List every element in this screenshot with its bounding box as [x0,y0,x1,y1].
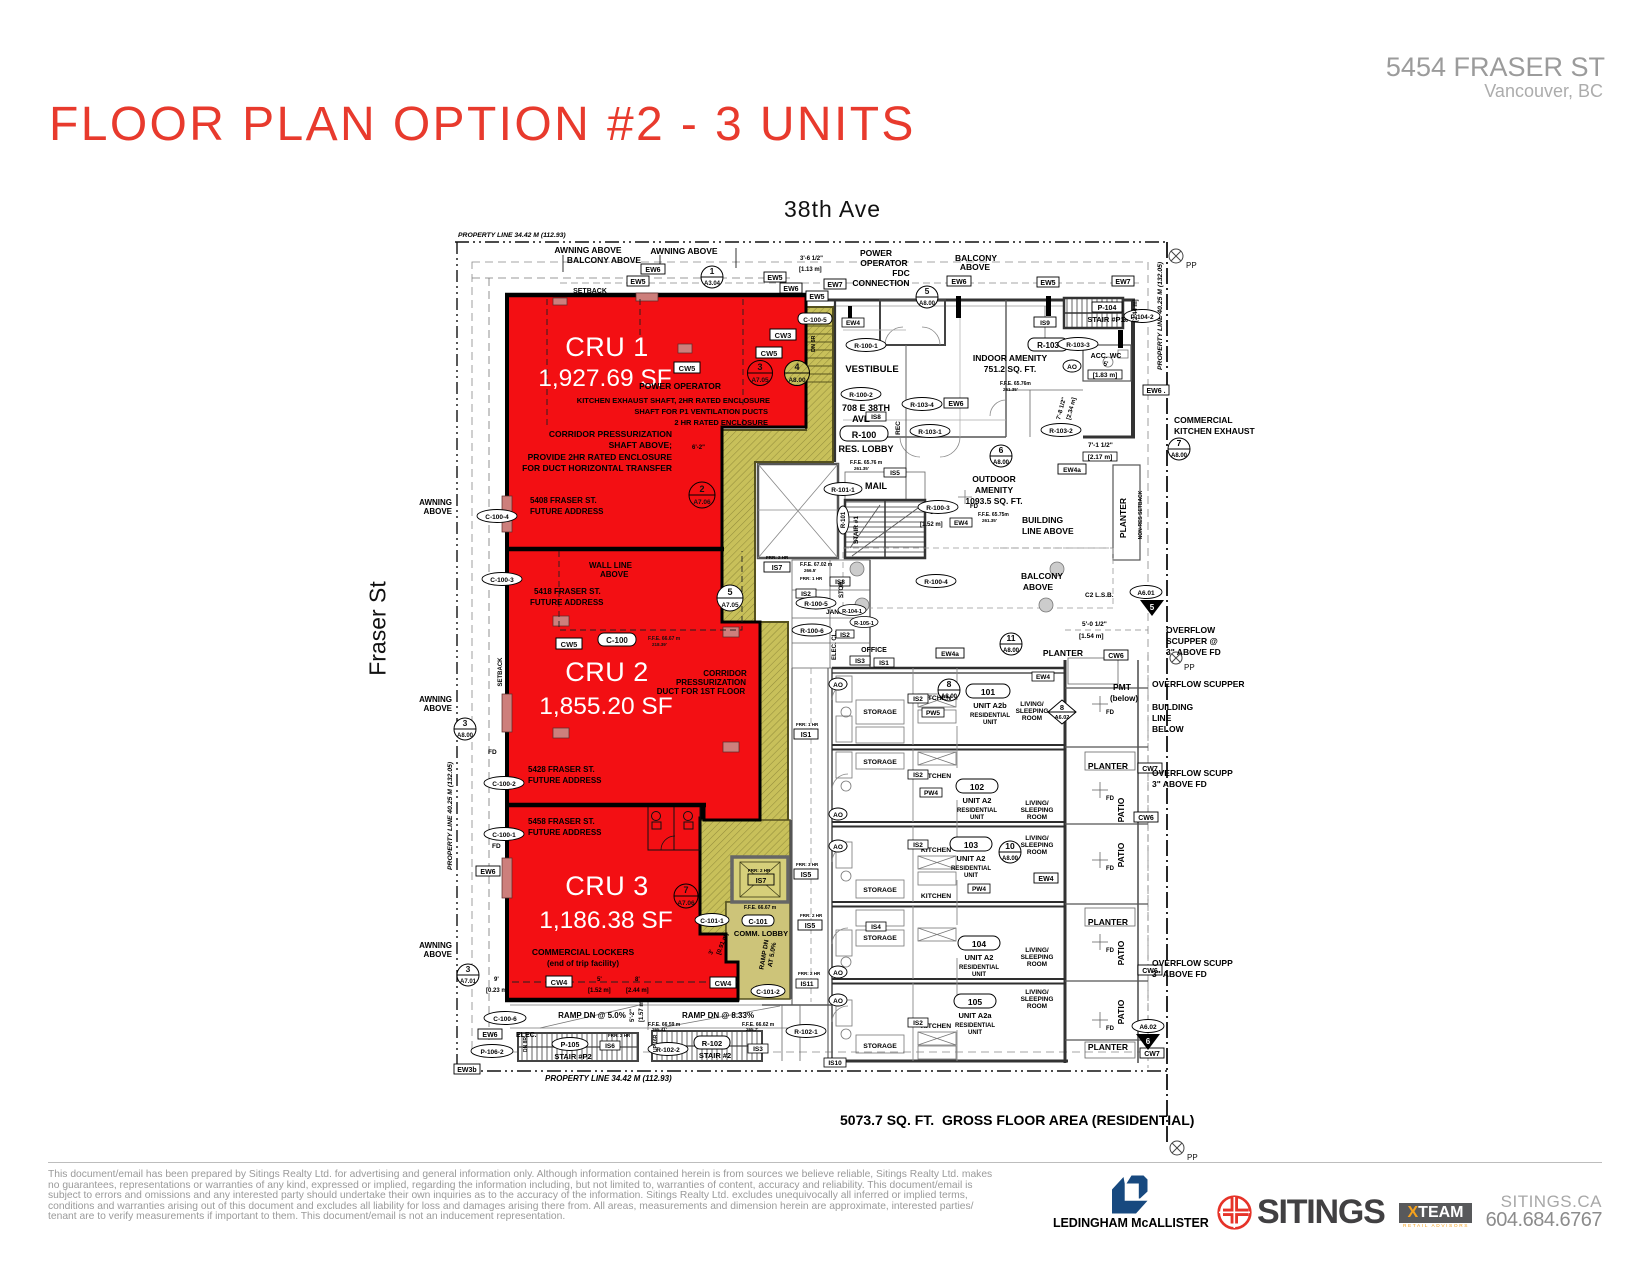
svg-text:A7.06: A7.06 [677,900,695,907]
svg-text:R-102-2: R-102-2 [656,1047,680,1054]
svg-text:UNIT A2: UNIT A2 [965,953,994,962]
svg-text:C-101-2: C-101-2 [756,989,780,996]
svg-text:C-101-1: C-101-1 [700,918,724,925]
svg-text:265.7': 265.7' [746,1027,758,1032]
svg-text:C-100-5: C-100-5 [803,317,827,324]
svg-text:IS5: IS5 [805,923,816,930]
svg-text:SLEEPING: SLEEPING [1016,708,1049,715]
svg-text:ROOM: ROOM [1027,814,1047,821]
svg-text:IS2: IS2 [913,842,923,849]
svg-text:FUTURE ADDRESS: FUTURE ADDRESS [528,828,602,837]
svg-text:3'-6 1/2": 3'-6 1/2" [800,256,823,262]
svg-text:3" ABOVE FD: 3" ABOVE FD [1152,969,1207,979]
svg-text:FDC: FDC [892,268,909,278]
svg-text:9': 9' [494,977,499,983]
svg-text:AO: AO [833,970,843,977]
svg-text:ROOM: ROOM [1027,961,1047,968]
svg-text:IS1: IS1 [879,660,889,667]
svg-text:AO: AO [833,844,843,851]
svg-text:AWNING: AWNING [419,695,452,704]
svg-text:R-103-3: R-103-3 [1066,342,1090,349]
svg-text:IS3: IS3 [855,658,865,665]
svg-text:EW6: EW6 [480,869,495,876]
svg-text:OUTDOOR: OUTDOOR [972,474,1015,484]
svg-text:5408 FRASER ST.: 5408 FRASER ST. [530,496,597,505]
svg-text:FRR: 2 HR: FRR: 2 HR [800,913,823,918]
svg-text:STORAGE: STORAGE [863,709,897,716]
svg-text:FOR DUCT HORIZONTAL TRANSFER: FOR DUCT HORIZONTAL TRANSFER [522,463,672,473]
svg-text:PRESSURIZATION: PRESSURIZATION [676,678,746,687]
svg-text:FD: FD [1106,796,1115,802]
svg-text:ABOVE: ABOVE [424,507,453,516]
svg-text:IS4: IS4 [871,924,881,931]
svg-text:PROPERTY LINE 40.25 M (132.05): PROPERTY LINE 40.25 M (132.05) [447,761,454,870]
svg-text:[1.83 m]: [1.83 m] [1093,372,1118,379]
svg-text:R-103-2: R-103-2 [1049,428,1073,435]
svg-text:R-104-1: R-104-1 [842,609,862,615]
svg-text:IS10: IS10 [828,1060,842,1067]
svg-text:EW5: EW5 [1040,280,1055,287]
svg-text:5': 5' [597,977,602,983]
svg-text:3: 3 [757,362,762,372]
svg-text:6: 6 [1146,1037,1151,1046]
svg-text:OPERATOR: OPERATOR [860,258,907,268]
svg-text:RAMP DN @ 5.0%: RAMP DN @ 5.0% [558,1011,626,1020]
svg-text:STAIR #1: STAIR #1 [853,516,860,544]
svg-text:IS5: IS5 [890,470,900,477]
svg-text:[0.23 m]: [0.23 m] [486,988,509,994]
svg-text:OVERFLOW SCUPPER: OVERFLOW SCUPPER [1152,679,1245,689]
svg-text:AO: AO [1067,364,1077,371]
svg-text:FRR: 3 HR: FRR: 3 HR [796,862,819,867]
svg-text:UNIT: UNIT [968,1030,982,1036]
svg-text:CONNECTION: CONNECTION [852,278,909,288]
svg-text:[1.52 m]: [1.52 m] [920,522,943,528]
svg-text:PLANTER: PLANTER [1088,1042,1128,1052]
svg-text:A7.05: A7.05 [721,602,739,609]
svg-text:RAMP DN @ 8.33%: RAMP DN @ 8.33% [682,1011,754,1020]
svg-text:CW5: CW5 [679,364,696,373]
svg-text:RESIDENTIAL: RESIDENTIAL [951,866,991,872]
svg-text:[2.34 m]: [2.34 m] [1066,397,1078,420]
svg-text:PROPERTY LINE 34.42 M (112.93): PROPERTY LINE 34.42 M (112.93) [458,232,566,239]
svg-text:[1.52 m]: [1.52 m] [588,988,611,994]
svg-text:5: 5 [727,587,732,597]
svg-text:IS11: IS11 [800,981,813,988]
svg-text:STAIR #P1: STAIR #P1 [1087,315,1124,324]
svg-text:EW7: EW7 [827,282,842,289]
svg-text:[1.54 m]: [1.54 m] [1079,633,1104,640]
svg-text:SLEEPING: SLEEPING [1021,842,1054,849]
svg-text:OVERFLOW: OVERFLOW [1166,625,1216,635]
svg-text:R-100-4: R-100-4 [924,579,948,586]
svg-text:3: 3 [466,964,471,974]
svg-text:1,186.38 SF: 1,186.38 SF [539,907,672,934]
svg-text:SLEEPING: SLEEPING [1021,996,1054,1003]
svg-text:STORAGE: STORAGE [863,935,897,942]
svg-text:EW4a: EW4a [1063,467,1081,474]
svg-text:UNIT: UNIT [964,873,978,879]
svg-text:FD: FD [970,504,979,510]
svg-text:R-100: R-100 [852,430,877,440]
svg-text:FD: FD [488,749,497,756]
svg-text:R-103-4: R-103-4 [910,402,934,409]
svg-text:STOR.: STOR. [839,579,845,598]
svg-text:1,855.20 SF: 1,855.20 SF [539,693,672,720]
svg-text:CW6: CW6 [1138,815,1154,822]
svg-text:265.41': 265.41' [652,1027,667,1032]
svg-text:ABOVE: ABOVE [424,704,453,713]
svg-text:CRU 2: CRU 2 [565,657,649,687]
svg-text:EW3b: EW3b [457,1067,476,1074]
svg-text:AO: AO [833,682,843,689]
svg-text:R-103-1: R-103-1 [918,429,942,436]
svg-text:PP: PP [1187,1153,1198,1162]
svg-text:CW5: CW5 [561,640,578,649]
svg-text:A8.00: A8.00 [1003,648,1020,654]
svg-text:BUILDING: BUILDING [1152,702,1193,712]
svg-text:PW5: PW5 [926,710,940,717]
svg-text:C-100-6: C-100-6 [493,1016,517,1023]
svg-text:103: 103 [964,840,978,850]
svg-text:5458 FRASER ST.: 5458 FRASER ST. [528,817,595,826]
svg-text:CW5: CW5 [761,349,778,358]
svg-text:FUTURE ADDRESS: FUTURE ADDRESS [530,507,604,516]
svg-text:P-106-2: P-106-2 [480,1049,504,1056]
svg-text:104: 104 [972,939,986,949]
svg-text:UNIT A2: UNIT A2 [957,854,986,863]
svg-text:5: 5 [925,286,930,296]
svg-text:STORAGE: STORAGE [863,887,897,894]
svg-text:CW6: CW6 [1108,653,1124,660]
svg-text:5428 FRASER ST.: 5428 FRASER ST. [528,765,595,774]
svg-text:SHAFT ABOVE;: SHAFT ABOVE; [609,440,673,450]
svg-text:LIVING/: LIVING/ [1020,701,1044,708]
svg-text:8': 8' [635,977,640,983]
svg-text:SLEEPING: SLEEPING [1021,954,1054,961]
svg-text:C-100-2: C-100-2 [492,781,516,788]
svg-text:5'-2": 5'-2" [630,1009,636,1022]
svg-text:C-100-3: C-100-3 [490,577,514,584]
svg-text:R-100-1: R-100-1 [854,343,878,350]
svg-text:P-105: P-105 [561,1042,580,1049]
svg-text:A8.00: A8.00 [1171,453,1188,459]
svg-text:COMMERCIAL: COMMERCIAL [1174,415,1233,425]
svg-text:2 HR RATED ENCLOSURE: 2 HR RATED ENCLOSURE [674,418,768,427]
svg-text:3" ABOVE FD: 3" ABOVE FD [1152,779,1207,789]
svg-text:A8.00: A8.00 [1002,856,1019,862]
svg-text:EW4a: EW4a [941,651,959,658]
svg-text:A6.02: A6.02 [1055,715,1070,721]
svg-text:708 E 38TH: 708 E 38TH [842,403,890,413]
svg-text:6: 6 [999,445,1004,455]
svg-text:7'-1 1/2": 7'-1 1/2" [1088,442,1113,449]
svg-text:ELEC.: ELEC. [516,1032,537,1039]
svg-text:POWER: POWER [860,248,892,258]
svg-text:5: 5 [1150,603,1155,612]
svg-text:POWER OPERATOR: POWER OPERATOR [639,381,721,391]
svg-text:RES. LOBBY: RES. LOBBY [838,444,893,454]
svg-text:C-100: C-100 [606,636,628,645]
svg-text:R-102: R-102 [702,1039,722,1048]
svg-text:105: 105 [968,997,982,1007]
svg-text:C-101: C-101 [748,919,767,926]
svg-text:IS1: IS1 [801,732,812,739]
svg-text:A7.05: A7.05 [751,377,769,384]
svg-text:IS2: IS2 [913,696,923,703]
svg-text:SCUPPER @: SCUPPER @ [1166,636,1218,646]
svg-text:CW4: CW4 [551,978,568,987]
svg-text:UNIT A2a: UNIT A2a [958,1011,992,1020]
svg-text:3" ABOVE FD: 3" ABOVE FD [1166,647,1221,657]
svg-text:ROOM: ROOM [1027,1003,1047,1010]
svg-text:IS7: IS7 [772,565,783,572]
svg-text:PLANTER: PLANTER [1043,648,1083,658]
svg-text:PLANTER: PLANTER [1118,498,1128,538]
svg-text:4: 4 [794,362,799,372]
svg-text:261.35': 261.35' [854,466,869,471]
svg-text:5418 FRASER ST.: 5418 FRASER ST. [534,587,601,596]
svg-text:7: 7 [1177,438,1182,448]
svg-text:EW4: EW4 [1036,674,1050,681]
svg-text:[1.57 m]: [1.57 m] [639,999,645,1022]
svg-text:LINE: LINE [1152,713,1172,723]
svg-text:EW6: EW6 [783,286,798,293]
svg-text:UNIT: UNIT [983,720,997,726]
svg-text:IS2: IS2 [840,632,850,639]
svg-text:REC: REC [895,421,902,435]
svg-text:R-100-2: R-100-2 [849,392,873,399]
svg-text:1: 1 [710,266,715,276]
svg-text:IS3: IS3 [753,1046,763,1053]
svg-text:PATIO: PATIO [1116,999,1126,1024]
svg-text:AO: AO [833,998,843,1005]
svg-text:VESTIBULE: VESTIBULE [845,364,898,375]
svg-text:101: 101 [981,687,995,697]
svg-text:IS9: IS9 [1040,320,1050,327]
svg-text:FRR: 2 HR: FRR: 2 HR [766,555,789,560]
svg-text:A6.02: A6.02 [1139,1024,1157,1031]
svg-text:EW6: EW6 [645,267,660,274]
svg-text:KITCHEN EXHAUST SHAFT, 2HR RAT: KITCHEN EXHAUST SHAFT, 2HR RATED ENCLOSU… [577,396,770,405]
svg-text:FUTURE ADDRESS: FUTURE ADDRESS [530,598,604,607]
svg-text:LIVING/: LIVING/ [1025,989,1049,996]
svg-text:RESIDENTIAL: RESIDENTIAL [970,713,1010,719]
svg-text:STORAGE: STORAGE [863,759,897,766]
svg-text:R-103: R-103 [1037,341,1059,350]
svg-text:RESIDENTIAL: RESIDENTIAL [959,965,999,971]
svg-text:261.35': 261.35' [982,518,997,523]
svg-text:CORRIDOR: CORRIDOR [703,669,747,678]
svg-text:IS2: IS2 [913,772,923,779]
svg-text:KITCHEN EXHAUST: KITCHEN EXHAUST [1174,426,1256,436]
svg-text:266.5': 266.5' [804,568,816,573]
svg-text:BUILDING: BUILDING [1022,515,1063,525]
svg-text:FRR: 2 HR: FRR: 2 HR [748,868,771,873]
svg-text:AWNING: AWNING [419,941,452,950]
svg-text:102: 102 [970,782,984,792]
svg-text:11: 11 [1007,633,1016,643]
svg-text:(end of trip facility): (end of trip facility) [547,959,619,968]
svg-text:UNIT: UNIT [972,972,986,978]
svg-text:UNIT: UNIT [970,815,984,821]
svg-text:SETBACK: SETBACK [498,657,504,687]
svg-text:6'-2": 6'-2" [692,445,705,451]
svg-text:IS2: IS2 [913,1020,923,1027]
svg-text:IS5: IS5 [801,872,812,879]
svg-text:R-100-3: R-100-3 [926,505,950,512]
svg-text:PLANTER: PLANTER [1088,917,1128,927]
svg-text:OFFICE: OFFICE [861,647,887,654]
svg-text:LIVING/: LIVING/ [1025,947,1049,954]
svg-text:FRR: 1 HR: FRR: 1 HR [800,576,823,581]
svg-text:PP: PP [1186,261,1197,270]
svg-text:EW6: EW6 [948,401,963,408]
svg-text:CRU 3: CRU 3 [565,871,649,901]
svg-text:3: 3 [463,718,468,728]
svg-text:IS8: IS8 [871,414,881,421]
svg-text:FD: FD [1106,866,1115,872]
svg-text:[2.44 m]: [2.44 m] [626,988,649,994]
svg-text:FRR: 2 HR: FRR: 2 HR [608,1033,631,1038]
svg-text:DUCT FOR 1ST FLOOR: DUCT FOR 1ST FLOOR [657,687,746,696]
svg-text:EW6: EW6 [951,279,966,286]
svg-text:SETBACK: SETBACK [573,288,607,295]
svg-text:8': 8' [1124,317,1130,322]
svg-text:EW4: EW4 [846,320,860,327]
svg-text:AO: AO [833,812,843,819]
svg-text:CW7: CW7 [1144,1051,1160,1058]
svg-text:EW5: EW5 [767,275,782,282]
svg-text:MAIL: MAIL [865,481,887,491]
svg-text:PW4: PW4 [924,790,938,797]
svg-text:STORAGE: STORAGE [863,1043,897,1050]
svg-text:A8.00: A8.00 [788,377,806,384]
svg-text:ACC. WC: ACC. WC [1091,353,1122,360]
svg-text:FD: FD [1106,710,1115,716]
svg-text:[2.44 m]: [2.44 m] [1133,299,1139,322]
svg-text:PLANTER: PLANTER [1088,761,1128,771]
svg-text:INDOOR AMENITY: INDOOR AMENITY [973,353,1048,363]
svg-text:A3.04: A3.04 [704,281,721,287]
svg-text:OVERFLOW SCUPP: OVERFLOW SCUPP [1152,958,1233,968]
svg-text:[2.17 m]: [2.17 m] [1088,454,1113,461]
svg-text:751.2 SQ. FT.: 751.2 SQ. FT. [984,364,1036,374]
svg-text:EW6 .: EW6 . [1146,388,1165,395]
svg-text:ROOM: ROOM [1027,849,1047,856]
svg-text:R-100-5: R-100-5 [804,601,828,608]
svg-text:R-101-1: R-101-1 [831,487,855,494]
svg-text:EW4: EW4 [954,520,968,527]
svg-text:261.35': 261.35' [1003,387,1018,392]
svg-text:8: 8 [947,679,952,689]
svg-text:R-102-1: R-102-1 [794,1029,818,1036]
svg-text:PP: PP [1184,663,1195,672]
svg-text:[1.13 m]: [1.13 m] [799,267,822,273]
svg-text:IS7: IS7 [756,878,767,885]
svg-text:C-100-4: C-100-4 [485,514,509,521]
svg-text:ABOVE: ABOVE [1023,582,1054,592]
svg-text:CRU 1: CRU 1 [565,332,649,362]
svg-text:FD: FD [1106,1026,1115,1032]
svg-text:AWNING ABOVE: AWNING ABOVE [650,246,718,256]
svg-text:C-100-1: C-100-1 [492,832,516,839]
svg-text:PROPERTY LINE 34.42 M (112.93): PROPERTY LINE 34.42 M (112.93) [545,1074,672,1083]
svg-text:RESIDENTIAL: RESIDENTIAL [957,808,997,814]
svg-text:PATIO: PATIO [1116,940,1126,965]
svg-text:CW4: CW4 [715,979,732,988]
svg-text:KITCHEN: KITCHEN [921,893,951,900]
svg-text:EW6: EW6 [482,1032,497,1039]
svg-text:COMM. LOBBY: COMM. LOBBY [734,929,788,938]
svg-text:ABOVE: ABOVE [960,262,991,272]
svg-text:IS6: IS6 [605,1043,615,1050]
svg-text:R-101: R-101 [841,511,847,528]
svg-text:C2 L.S.B.: C2 L.S.B. [1085,592,1114,599]
svg-text:BALCONY ABOVE: BALCONY ABOVE [567,255,641,265]
svg-text:(below): (below) [1110,694,1138,703]
svg-text:ABOVE: ABOVE [424,950,453,959]
svg-text:8: 8 [1060,703,1064,712]
svg-text:PROVIDE 2HR RATED ENCLOSURE: PROVIDE 2HR RATED ENCLOSURE [528,452,673,462]
svg-text:7: 7 [683,885,688,895]
svg-text:5': 5' [1104,362,1109,368]
svg-text:WALL LINE: WALL LINE [589,561,633,570]
svg-text:10: 10 [1005,841,1015,851]
svg-text:LIVING/: LIVING/ [1025,800,1049,807]
svg-text:5'-0 1/2": 5'-0 1/2" [1082,621,1107,628]
svg-text:EW4: EW4 [1038,876,1053,883]
svg-text:UNIT A2b: UNIT A2b [973,701,1007,710]
svg-text:A7.01: A7.01 [460,979,477,985]
svg-text:AWNING: AWNING [419,498,452,507]
svg-text:PMT: PMT [1113,682,1132,692]
svg-text:ELEC. CL.: ELEC. CL. [832,631,838,660]
svg-text:R-105-1: R-105-1 [854,621,874,627]
svg-text:PATIO: PATIO [1116,842,1126,867]
svg-text:PW4: PW4 [972,886,986,893]
svg-text:LIVING/: LIVING/ [1025,835,1049,842]
svg-text:SHAFT FOR P1 VENTILATION DUCTS: SHAFT FOR P1 VENTILATION DUCTS [634,407,768,416]
svg-text:PATIO: PATIO [1116,797,1126,822]
svg-text:A8.00: A8.00 [457,733,474,739]
svg-text:AWNING ABOVE: AWNING ABOVE [554,245,622,255]
svg-text:FD: FD [1106,948,1115,954]
svg-text:EW7: EW7 [1115,279,1130,286]
svg-text:COMMERCIAL LOCKERS: COMMERCIAL LOCKERS [532,947,635,957]
svg-text:A8.00: A8.00 [993,460,1010,466]
svg-text:CW3: CW3 [775,331,792,340]
svg-text:AMENITY: AMENITY [975,485,1014,495]
svg-text:FD: FD [492,843,501,850]
svg-text:CORRIDOR PRESSURIZATION: CORRIDOR PRESSURIZATION [549,429,672,439]
svg-text:RESIDENTIAL: RESIDENTIAL [955,1023,995,1029]
svg-text:STAIR #2: STAIR #2 [699,1051,731,1060]
svg-text:BELOW: BELOW [1152,724,1185,734]
svg-text:P-104: P-104 [1098,305,1117,312]
svg-text:ROOM: ROOM [1022,715,1042,722]
svg-text:NON-RES SETBACK: NON-RES SETBACK [1138,490,1144,539]
svg-text:A7.06: A7.06 [693,499,711,506]
svg-text:F.F.E. 66.67 m: F.F.E. 66.67 m [744,905,777,911]
svg-text:FUTURE ADDRESS: FUTURE ADDRESS [528,776,602,785]
svg-text:SLEEPING: SLEEPING [1021,807,1054,814]
svg-text:A6.01: A6.01 [1137,590,1155,597]
svg-text:EW5: EW5 [809,294,824,301]
svg-text:EW5: EW5 [630,279,645,286]
svg-text:STAIR #P2: STAIR #P2 [554,1052,591,1061]
svg-text:UP 16R: UP 16R [653,1034,659,1052]
